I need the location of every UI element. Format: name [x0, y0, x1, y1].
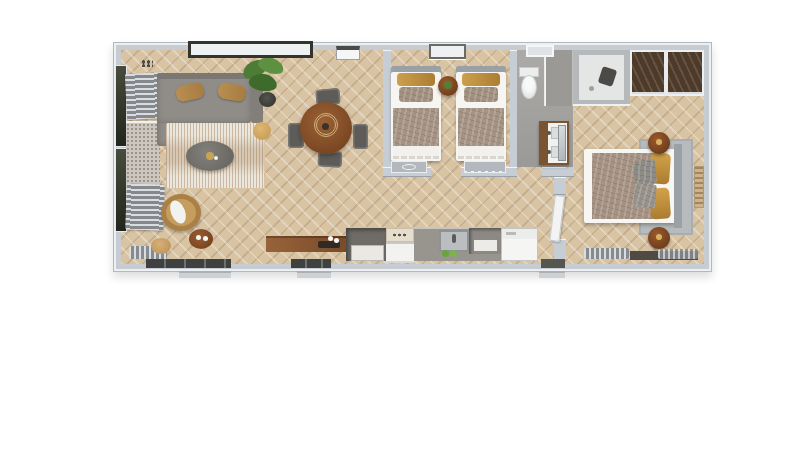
- shower-glass-panel: [544, 50, 546, 106]
- wardrobe-divider: [664, 50, 668, 96]
- oven: [386, 242, 414, 263]
- side-table-decor: [196, 235, 201, 240]
- exterior-step-right: [539, 271, 565, 278]
- master-headboard: [674, 144, 682, 228]
- console-oval-handle-icon: [402, 164, 416, 170]
- single-bed-left-gold-pillow: [397, 73, 435, 86]
- room-hallway: [517, 177, 554, 261]
- nightstand-gold-decor: [656, 139, 662, 145]
- cooktop-knobs: [392, 233, 408, 237]
- slat-bench-lower: [125, 183, 165, 230]
- toilet-bowl: [521, 75, 537, 99]
- fridge-handle: [506, 232, 516, 235]
- window-living-small: [336, 46, 360, 60]
- window-twin-bedroom: [429, 44, 466, 59]
- floor-plan: [113, 42, 712, 272]
- wall-living-twin: [383, 50, 391, 177]
- single-bed-right-duvet: [458, 108, 504, 148]
- vanity-faucets: [547, 131, 551, 135]
- wall-art-runner: [694, 166, 704, 208]
- screenshot-canvas: { "scene": { "title": "3D top-down floor…: [0, 0, 800, 450]
- master-bench-weave: [658, 249, 698, 259]
- dining-chair-east: [353, 124, 368, 149]
- twin-nightstand-plant: [444, 81, 452, 89]
- window-bathroom: [526, 45, 554, 57]
- herb-pots: [442, 250, 449, 257]
- master-radiator: [584, 248, 629, 259]
- room-master-bedroom: [566, 50, 704, 261]
- entry-door-dark: [541, 259, 565, 268]
- sideboard-vases: [328, 236, 333, 241]
- dining-decor: [322, 123, 329, 130]
- sliding-door-glass-left: [146, 259, 231, 268]
- room-twin-bedroom: [391, 50, 510, 167]
- single-bed-left-duvet: [393, 108, 439, 148]
- single-bed-right-taupe-pillow: [464, 87, 498, 102]
- sliding-door-glass-mid: [291, 259, 331, 268]
- exterior-step-left: [179, 271, 231, 278]
- sink-faucet: [452, 234, 456, 243]
- master-nightstand-bottom: [648, 227, 670, 249]
- sideboard-tray: [318, 241, 340, 248]
- coffee-table-decor: [206, 152, 214, 160]
- window-seat-cushions: [126, 121, 160, 187]
- open-shelf-inner: [474, 240, 497, 251]
- room-dining: [284, 83, 384, 183]
- grey-cushion-bottom: [633, 183, 657, 209]
- plant-pot: [259, 92, 276, 107]
- single-bed-right-gold-pillow: [462, 73, 500, 86]
- window-living-large: [188, 41, 313, 58]
- leaning-mirror: [558, 125, 566, 161]
- builtin-console-knobs: [464, 161, 506, 173]
- cabinet-open-shelf: [351, 245, 384, 261]
- side-table-small: [151, 238, 171, 254]
- single-bed-right-fold: [458, 146, 504, 159]
- single-bed-left-fold: [393, 146, 439, 159]
- floor-decor-pebbles: [141, 60, 153, 67]
- side-table-round: [189, 229, 213, 249]
- wall-hall-master-upper: [554, 177, 566, 195]
- pouf: [253, 122, 271, 140]
- single-bed-left-taupe-pillow: [399, 87, 433, 102]
- exterior-step-mid: [297, 271, 331, 278]
- room-kitchen: [266, 226, 538, 263]
- grey-cushion-top: [633, 159, 657, 185]
- wall-hall-master-lower: [554, 239, 566, 261]
- wall-twin-bath: [510, 50, 517, 177]
